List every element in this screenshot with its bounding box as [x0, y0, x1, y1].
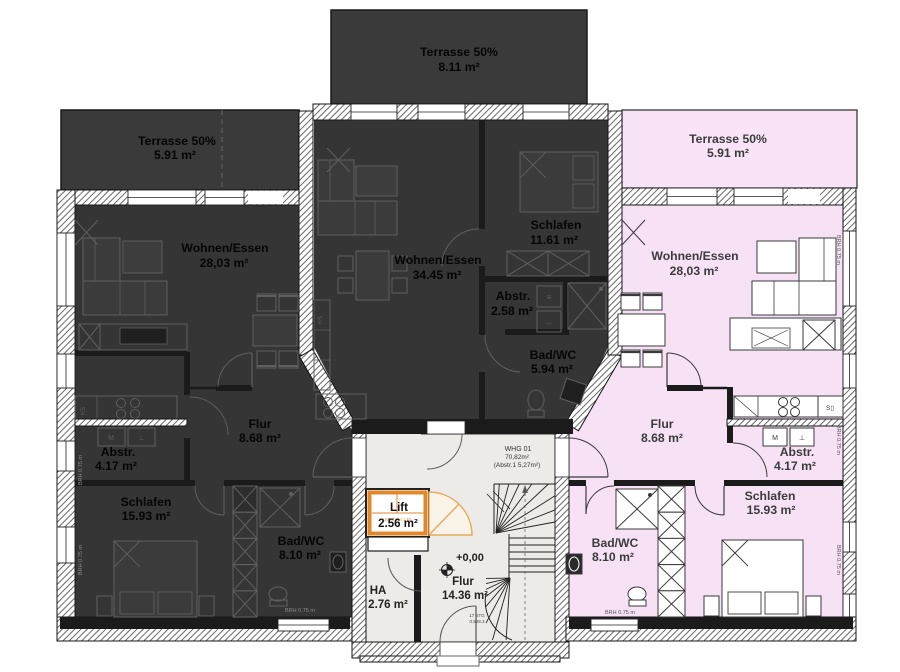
svg-text:⊥: ⊥	[799, 435, 805, 442]
svg-text:8.10 m²: 8.10 m²	[279, 548, 321, 562]
svg-text:WHG 01: WHG 01	[505, 446, 532, 453]
svg-text:BRH 0.75 m: BRH 0.75 m	[285, 608, 315, 614]
svg-text:Wohnen/Essen: Wohnen/Essen	[651, 249, 738, 263]
svg-text:Abstr.: Abstr.	[780, 445, 815, 459]
svg-text:34.45 m²: 34.45 m²	[413, 268, 462, 282]
svg-text:2.58 m²: 2.58 m²	[491, 304, 533, 318]
svg-text:←: ←	[545, 318, 553, 327]
svg-text:5.91 m²: 5.91 m²	[707, 146, 749, 160]
svg-text:Flur: Flur	[650, 417, 673, 431]
svg-text:28,03 m²: 28,03 m²	[670, 264, 719, 278]
svg-text:5.94 m²: 5.94 m²	[531, 362, 573, 376]
svg-text:0.528.3: 0.528.3	[469, 619, 485, 624]
svg-text:⊥: ⊥	[138, 435, 144, 442]
svg-text:Schlafen: Schlafen	[745, 489, 796, 503]
svg-text:BRH 0.75 m: BRH 0.75 m	[605, 610, 635, 616]
svg-text:Bad/WC: Bad/WC	[592, 536, 639, 550]
svg-text:M: M	[108, 435, 114, 442]
svg-text:Flur: Flur	[452, 576, 474, 588]
svg-text:8.10 m²: 8.10 m²	[592, 550, 634, 564]
svg-text:4.17 m²: 4.17 m²	[95, 459, 137, 473]
svg-text:BRH 0.75 m: BRH 0.75 m	[78, 455, 84, 485]
svg-text:11.61 m²: 11.61 m²	[530, 233, 578, 247]
svg-text:8.68 m²: 8.68 m²	[641, 431, 683, 445]
svg-text:Lift: Lift	[390, 502, 408, 514]
svg-text:Terrasse 50%: Terrasse 50%	[420, 45, 498, 59]
svg-text:15.93 m²: 15.93 m²	[747, 503, 796, 517]
svg-text:Terrasse 50%: Terrasse 50%	[138, 134, 216, 148]
svg-text:Terrasse 50%: Terrasse 50%	[689, 132, 767, 146]
svg-text:Wohnen/Essen: Wohnen/Essen	[394, 253, 481, 267]
svg-text:Bad/WC: Bad/WC	[530, 348, 577, 362]
svg-text:Schlafen: Schlafen	[531, 218, 582, 232]
svg-text:M: M	[772, 435, 778, 442]
svg-text:70,82m²: 70,82m²	[505, 454, 530, 461]
svg-text:Wohnen/Essen: Wohnen/Essen	[181, 241, 268, 255]
svg-text:Abstr.: Abstr.	[496, 289, 531, 303]
svg-text:Bad/WC: Bad/WC	[278, 534, 325, 548]
svg-text:+0,00: +0,00	[456, 552, 484, 564]
svg-text:5.91 m²: 5.91 m²	[154, 148, 196, 162]
svg-text:S▯: S▯	[826, 405, 834, 412]
svg-text:≡: ≡	[547, 293, 552, 302]
svg-text:HA: HA	[370, 585, 387, 597]
svg-text:BRH 0.75 m: BRH 0.75 m	[835, 545, 841, 575]
svg-text:4.17 m²: 4.17 m²	[774, 459, 816, 473]
svg-text:Schlafen: Schlafen	[121, 495, 172, 509]
svg-text:Abstr.: Abstr.	[101, 445, 136, 459]
svg-text:17 STG: 17 STG	[469, 613, 485, 618]
svg-text:(Abstr.1 5,27m²): (Abstr.1 5,27m²)	[494, 462, 541, 469]
svg-text:8.68 m²: 8.68 m²	[239, 431, 281, 445]
svg-text:KS: KS	[318, 316, 324, 324]
svg-text:2.76 m²: 2.76 m²	[368, 599, 408, 611]
svg-text:28,03 m²: 28,03 m²	[200, 256, 249, 270]
svg-text:KS: KS	[81, 407, 87, 415]
svg-text:2.56 m²: 2.56 m²	[378, 518, 418, 530]
svg-text:14.36 m²: 14.36 m²	[442, 590, 488, 602]
svg-text:BRH 0.75 m: BRH 0.75 m	[78, 545, 84, 575]
svg-text:15.93 m²: 15.93 m²	[122, 509, 171, 523]
svg-text:Flur: Flur	[248, 417, 271, 431]
svg-text:8.11 m²: 8.11 m²	[438, 60, 479, 74]
svg-text:BRH 0.75 m: BRH 0.75 m	[835, 425, 841, 455]
svg-text:BRH 0.75 m: BRH 0.75 m	[835, 235, 841, 265]
